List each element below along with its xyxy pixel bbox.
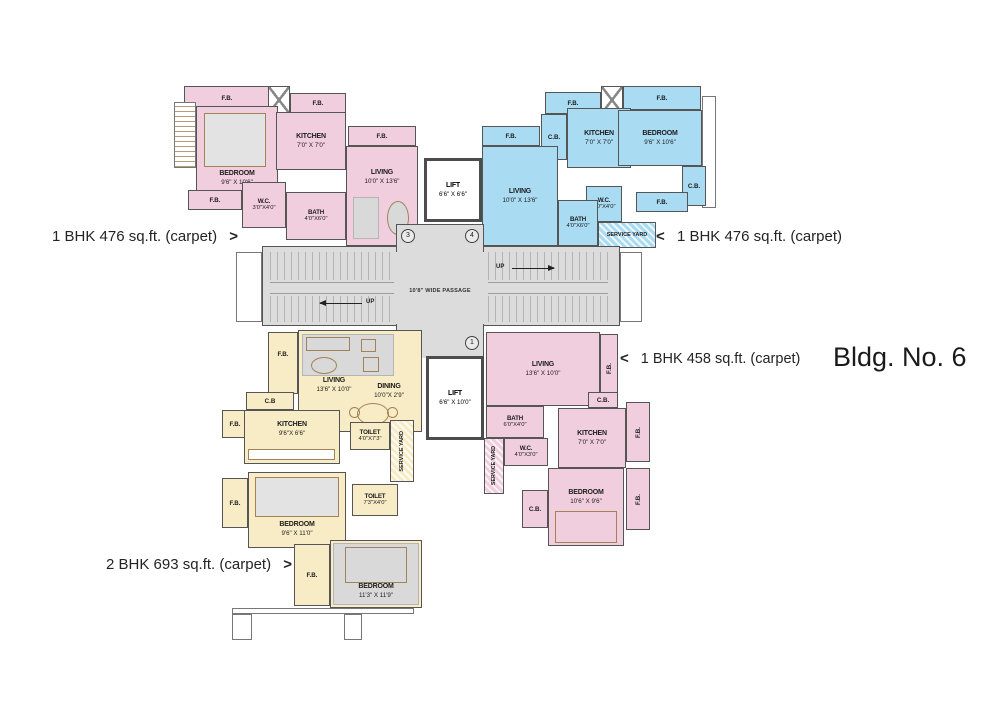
unit-b-bath: BATH 4'0"X6'0" (558, 200, 598, 246)
room-dims: 10'0" X 13'6" (503, 197, 538, 204)
stair-landing-right (488, 282, 608, 294)
room-label: F.B. (222, 95, 233, 102)
room-label: KITCHEN (577, 430, 607, 439)
unit-d-cb-left: C.B. (522, 490, 548, 528)
lift-lower: LIFT 6'6" X 10'0" (426, 356, 484, 440)
annotation-text: 1 BHK 458 sq.ft. (carpet) (641, 351, 801, 367)
room-label: BATH (507, 415, 523, 423)
unit-c-cb: C.B (246, 392, 294, 410)
arrow-right-icon: > (229, 228, 238, 245)
unit-a-wc: W.C. 3'0"X4'0" (242, 182, 286, 228)
arrow-right-icon: > (283, 556, 292, 573)
unit-d-cb-top: C.B. (588, 392, 618, 408)
unit-c-fb-mid: F.B. (294, 544, 330, 606)
room-label: BEDROOM (642, 130, 677, 139)
room-dims: 7'3"X4'0" (363, 500, 386, 507)
room-label: BATH (308, 209, 324, 217)
room-dims: 4'0"X3'0" (514, 452, 537, 459)
room-dims: 10'0" X 13'6" (365, 178, 400, 185)
lift-label: LIFT (448, 390, 462, 399)
unit-a-kitchen: KITCHEN 7'0" X 7'0" (276, 112, 346, 170)
arrow-left-icon: < (620, 350, 629, 367)
room-dims: 3'0"X4'0" (252, 205, 275, 212)
room-label: C.B. (529, 506, 541, 513)
room-label: DINING (377, 383, 400, 392)
table-icon (311, 357, 337, 374)
unit-c-service-yard: SERVICE YARD (390, 420, 414, 482)
unit-c-dining-label: DINING 10'0"X 2'9" (357, 383, 421, 399)
unit-b-living: LIVING 10'0" X 13'6" (482, 146, 558, 246)
lift-dims: 6'6" X 10'0" (439, 399, 471, 406)
stair-landing-left (270, 282, 394, 294)
room-label: LIVING (323, 377, 345, 386)
unit-d-kitchen: KITCHEN 7'0" X 7'0" (558, 408, 626, 468)
room-label: F.B. (377, 133, 388, 140)
room-label: W.C. (520, 445, 533, 453)
unit-b-fb-top-right: F.B. (623, 86, 701, 110)
flat-number-4: 4 (465, 229, 479, 243)
unit-a-bath: BATH 4'0"X6'0" (286, 192, 346, 240)
chair-icon (361, 339, 376, 352)
annotation-flat2: 2 BHK 693 sq.ft. (carpet) > (106, 556, 292, 573)
unit-b-fb-left: F.B. (482, 126, 540, 146)
room-label: BATH (570, 216, 586, 224)
room-label: LIVING (532, 361, 554, 370)
room-label: F.B. (230, 500, 241, 507)
staircase-left (270, 252, 394, 280)
room-label: C.B (265, 398, 276, 405)
unit-d-wc: W.C. 4'0"X3'0" (504, 438, 548, 466)
room-label: BEDROOM (279, 521, 314, 530)
lift-label: LIFT (446, 182, 460, 191)
flat-number-3: 3 (401, 229, 415, 243)
room-dims: 4'0"X6'0" (566, 223, 589, 230)
room-dims: 10'6" X 9'6" (570, 498, 602, 505)
room-label: F.B. (657, 199, 668, 206)
room-dims: 4'0"X6'0" (304, 216, 327, 223)
room-label: F.B. (278, 351, 289, 358)
annotation-flat1: < 1 BHK 458 sq.ft. (carpet) (620, 350, 800, 367)
sofa-icon (306, 337, 350, 351)
bed-icon (345, 547, 407, 583)
annotation-text: 2 BHK 693 sq.ft. (carpet) (106, 556, 271, 573)
floor-plan: F.B. F.B. BEDROOM 9'6" X 10'6" KITCHEN 7… (0, 0, 1000, 718)
unit-c-bedroom1: BEDROOM 9'6" X 11'0" (248, 472, 346, 548)
lift-upper: LIFT 6'6" X 6'6" (424, 158, 482, 222)
room-label: F.B. (635, 494, 642, 505)
unit-c-fb-top: F.B. (268, 332, 298, 394)
room-label: SERVICE YARD (607, 232, 648, 238)
room-dims: 9'6" X 10'6" (644, 139, 676, 146)
unit-a-fb-top-mid: F.B. (290, 93, 346, 114)
room-dims: 4'0"X7'3" (358, 436, 381, 443)
unit-b-service-yard: SERVICE YARD (598, 222, 656, 248)
room-dims: 11'3" X 11'9" (359, 592, 393, 599)
room-label: F.B. (313, 100, 324, 107)
room-dims: 7'0" X 7'0" (585, 139, 613, 146)
flat-number-1: 1 (465, 336, 479, 350)
unit-d-fb-right-bottom: F.B. (626, 468, 650, 530)
room-label: KITCHEN (277, 421, 307, 430)
chair-icon (363, 357, 379, 372)
annotation-flat3: 1 BHK 476 sq.ft. (carpet) > (52, 228, 238, 245)
room-dims: 7'0" X 7'0" (578, 439, 606, 446)
building-title: Bldg. No. 6 (833, 342, 967, 373)
room-label: SERVICE YARD (491, 446, 497, 485)
annotation-text: 1 BHK 476 sq.ft. (carpet) (52, 228, 217, 245)
arrow-left-icon: < (656, 228, 665, 245)
room-label: TOILET (365, 493, 386, 501)
room-label: BEDROOM (219, 170, 254, 179)
unit-d-living: LIVING 13'6" X 10'0" (486, 332, 600, 406)
room-label: TOILET (360, 429, 381, 437)
up-arrow-right-icon (512, 268, 554, 269)
balcony-rail (174, 102, 196, 168)
wardrobe-icon (353, 197, 379, 239)
parapet (232, 608, 414, 614)
room-label: F.B. (506, 133, 517, 140)
room-dims: 7'0" X 7'0" (297, 142, 325, 149)
room-label: KITCHEN (584, 130, 614, 139)
unit-a-fb-living: F.B. (348, 126, 416, 146)
passage-label: 10'8" WIDE PASSAGE (382, 288, 498, 294)
unit-d-service-yard: SERVICE YARD (484, 438, 504, 494)
ledge (236, 252, 262, 322)
kitchen-counter-icon (248, 449, 335, 460)
ledge (620, 252, 642, 322)
chair-icon (387, 407, 398, 418)
room-dims: 9'6"X 6'6" (279, 430, 305, 437)
staircase-right-lower (488, 296, 608, 322)
parapet (344, 614, 362, 640)
lift-dims: 6'6" X 6'6" (439, 191, 467, 198)
unit-a-bedroom: BEDROOM 9'6" X 10'6" (196, 106, 278, 192)
unit-b-bedroom: BEDROOM 9'6" X 10'6" (618, 110, 702, 166)
room-dims: 9'6" X 11'0" (281, 530, 312, 537)
room-label: BEDROOM (358, 583, 393, 592)
chair-icon (349, 407, 360, 418)
unit-c-bedroom2: BEDROOM 11'3" X 11'9" (330, 540, 422, 608)
parapet (232, 614, 252, 640)
up-label-right: UP (496, 264, 504, 270)
room-label: F.B. (307, 572, 318, 579)
unit-b-fb-bottom: F.B. (636, 192, 688, 212)
unit-c-toilet-large: TOILET 7'3"X4'0" (352, 484, 398, 516)
bed-icon (255, 477, 339, 517)
bed-icon (555, 511, 617, 543)
unit-c-fb-bed: F.B. (222, 478, 248, 528)
room-label: F.B. (568, 100, 579, 107)
room-label: KITCHEN (296, 133, 326, 142)
up-arrow-left-icon (320, 303, 362, 304)
room-label: LIVING (509, 188, 531, 197)
room-label: F.B. (210, 197, 221, 204)
up-label-left: UP (366, 299, 374, 305)
annotation-text: 1 BHK 476 sq.ft. (carpet) (677, 228, 842, 245)
staircase-left-lower (270, 296, 394, 322)
room-label: F.B. (606, 363, 613, 374)
room-label: LIVING (371, 169, 393, 178)
unit-c-kitchen: KITCHEN 9'6"X 6'6" (244, 410, 340, 464)
room-label: W.C. (598, 197, 611, 205)
unit-d-fb-right-top: F.B. (626, 402, 650, 462)
room-label: F.B. (635, 427, 642, 438)
room-label: SERVICE YARD (399, 431, 405, 472)
room-label: C.B. (548, 134, 560, 141)
unit-d-bedroom: BEDROOM 10'6" X 9'6" (548, 468, 624, 546)
room-label: C.B. (597, 397, 609, 404)
unit-a-fb-bottom: F.B. (188, 190, 242, 210)
room-label: F.B. (230, 421, 241, 428)
room-label: W.C. (258, 198, 271, 206)
room-label: F.B. (657, 95, 668, 102)
room-dims: 13'6" X 10'0" (526, 370, 561, 377)
unit-d-bath: BATH 6'0"X4'0" (486, 406, 544, 438)
room-label: C.B. (688, 183, 700, 190)
room-dims: 6'0"X4'0" (503, 422, 526, 429)
annotation-flat4: < 1 BHK 476 sq.ft. (carpet) (656, 228, 842, 245)
bed-icon (204, 113, 266, 167)
room-dims: 13'6" X 10'0" (317, 386, 352, 393)
room-dims: 10'0"X 2'9" (374, 392, 404, 399)
room-label: BEDROOM (568, 489, 603, 498)
unit-c-toilet-small: TOILET 4'0"X7'3" (350, 422, 390, 450)
